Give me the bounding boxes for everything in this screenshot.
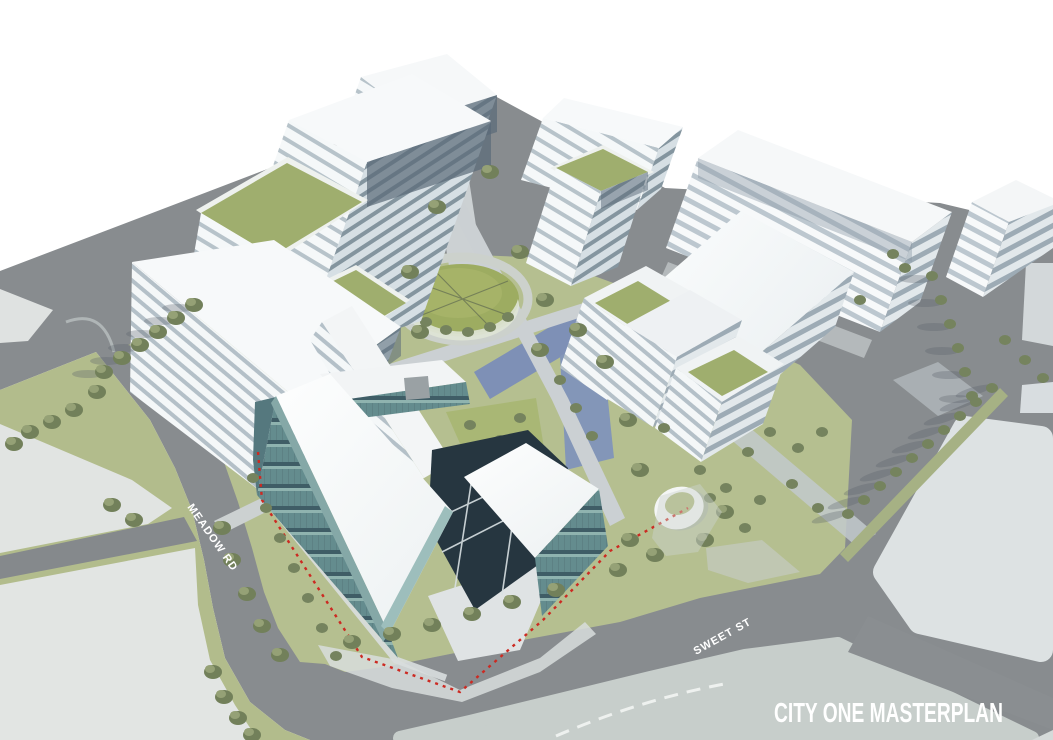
- svg-text:CITY ONE MASTERPLAN: CITY ONE MASTERPLAN: [774, 697, 1003, 728]
